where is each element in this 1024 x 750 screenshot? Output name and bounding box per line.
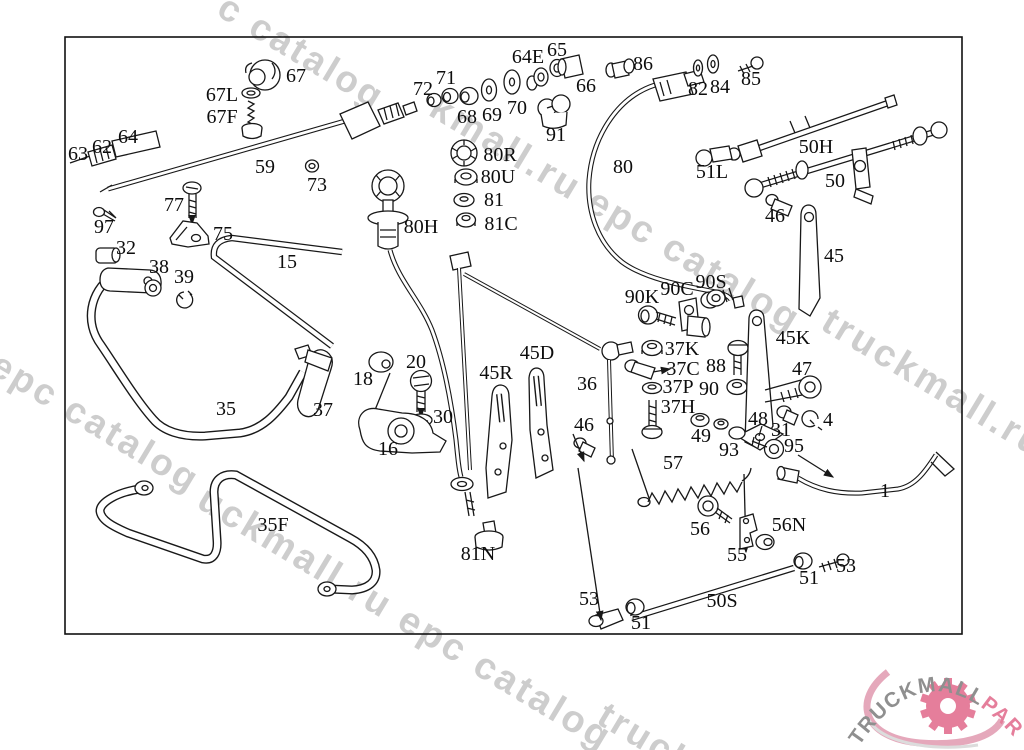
logo-text: TRUCKMALLPARTS	[0, 0, 1024, 749]
truckmall-logo: TRUCKMALLPARTS	[0, 0, 1024, 750]
catalog-page: c catalogkmall.ru epc catalogl epc catal…	[0, 0, 1024, 750]
